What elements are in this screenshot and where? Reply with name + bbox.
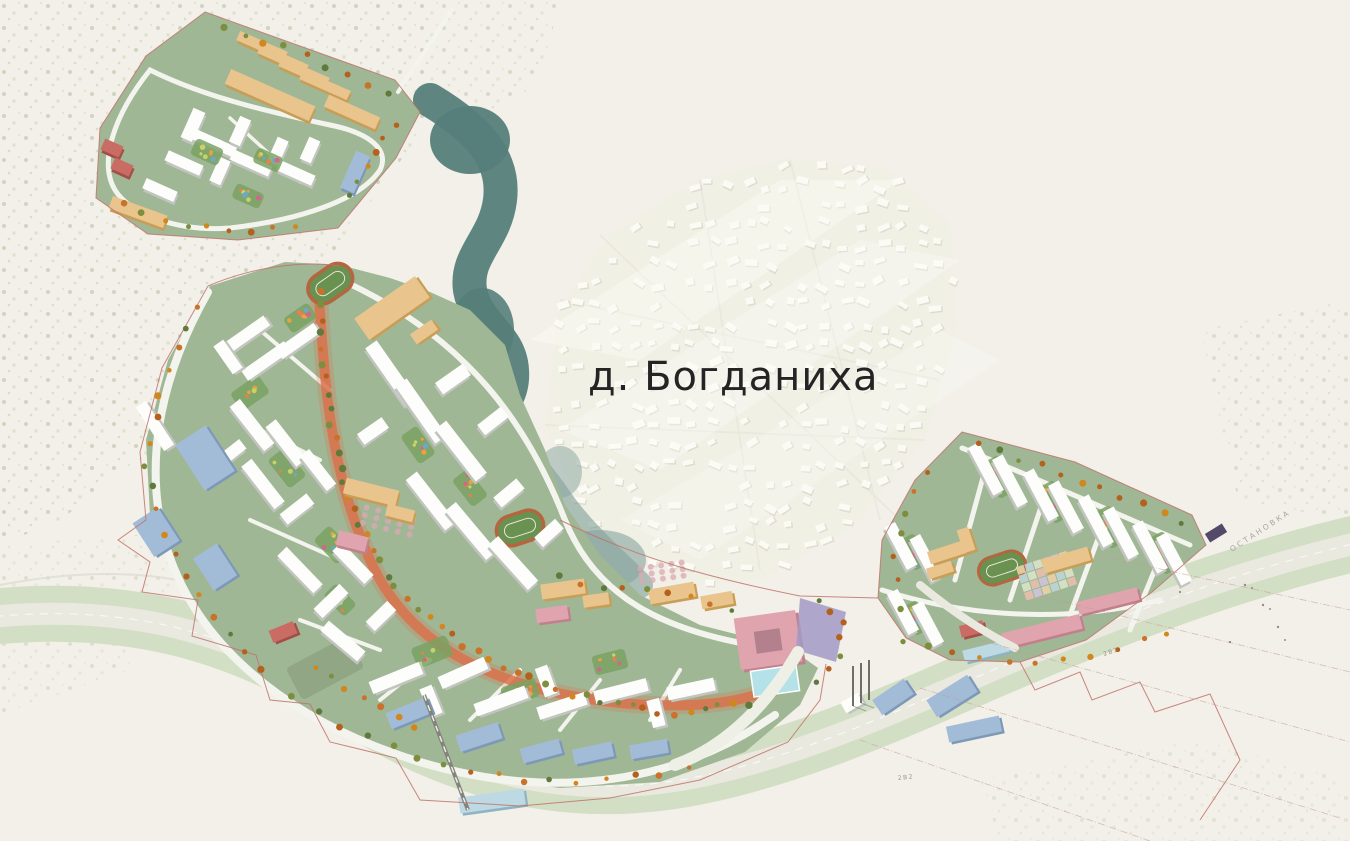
tree [167,368,172,373]
tree [644,586,650,592]
tree [121,200,128,207]
tree [411,724,418,731]
tree [1079,480,1086,487]
tree [891,554,896,559]
tree [689,594,694,599]
tree [415,607,421,613]
tree [366,164,371,169]
tree [324,373,329,378]
tree [161,532,168,539]
tree [317,328,324,335]
tree [574,781,579,786]
tree [468,770,473,775]
tree [329,406,335,412]
tree [204,223,209,228]
tree [259,40,266,47]
tree [386,91,392,97]
tree [176,345,182,351]
tree [336,450,343,457]
tree [817,598,822,603]
tree [320,318,326,324]
tree [317,301,324,308]
tree [631,702,636,707]
tree [902,511,908,517]
tree [257,666,264,673]
tree [244,34,249,39]
tree [386,574,392,580]
tree [148,441,153,446]
tree [1061,656,1066,661]
tree [458,643,465,650]
tree [1164,632,1169,637]
tree [1117,495,1123,501]
tree [326,392,332,398]
tree [542,681,549,688]
tree [355,180,360,185]
tree [688,709,694,715]
tree [380,136,385,141]
tree [347,193,352,198]
tree [210,614,217,621]
tree [186,224,191,229]
tree [154,392,161,399]
tree [376,556,383,563]
tree [521,779,527,785]
tree [138,209,145,216]
tree [671,712,678,719]
tree [365,531,371,537]
tree [394,123,399,128]
tree [1033,661,1038,666]
tree [497,771,502,776]
tree [976,441,982,447]
tree [656,772,663,779]
tree [556,572,563,579]
tree [227,228,232,233]
tree [329,674,334,679]
tree [1058,473,1063,478]
tree [352,505,359,512]
tree [322,64,329,71]
tree [196,592,201,597]
tree [141,463,147,469]
tree [898,530,904,536]
tree [664,590,671,597]
tree [339,465,346,472]
tree [715,702,720,707]
tree [570,694,576,700]
tree [316,708,322,714]
tree [365,82,372,89]
tree [1115,647,1120,652]
tree [341,686,347,692]
tree [977,655,982,660]
tree [730,700,737,707]
tree [897,606,903,612]
tree [242,649,247,654]
tree [584,691,591,698]
tree [334,435,340,441]
tree [616,700,622,706]
tree [345,72,351,78]
tree [707,601,713,607]
tree [654,711,660,717]
tree [841,619,847,625]
tree [730,608,735,613]
tree [515,669,522,676]
tree [619,585,625,591]
tree [996,446,1003,453]
tree [836,634,842,640]
tree [449,631,455,637]
tree [390,583,397,590]
tree [373,149,380,156]
tree [414,755,421,762]
tree [355,522,361,528]
tree [703,706,708,711]
tree [318,288,325,295]
tree [396,714,403,721]
tree [441,762,447,768]
tree [1179,521,1184,526]
tree [745,702,752,709]
tree [183,326,189,332]
tree [248,229,255,236]
tree [336,724,343,731]
tree [326,422,333,429]
tree [1087,654,1093,660]
tree [1162,509,1169,516]
tree [314,666,319,671]
tree [1097,484,1102,489]
tree [345,497,350,502]
masterplan-map: 2В2 2В2 ОСТАНОВКА д. Богданиха [0,0,1350,841]
tree [553,687,558,692]
tree [150,483,157,490]
tree [1140,499,1147,506]
tree [280,42,287,49]
tree [339,479,345,485]
tree [163,218,168,223]
tree [319,347,324,352]
tree [270,225,275,230]
tree [174,552,179,557]
tree [1016,458,1021,463]
tree [371,548,376,553]
tree [826,666,832,672]
tree [440,624,446,630]
tree [604,777,608,781]
tree [546,777,552,783]
tree [405,596,411,602]
tree [827,608,834,615]
tree [501,665,507,671]
tree [362,695,367,700]
tree [1007,659,1013,665]
tree [288,693,295,700]
tree [578,582,584,588]
tree [900,639,905,644]
tree [155,414,162,421]
tree [814,680,819,685]
tree [597,700,602,705]
tree [377,703,384,710]
tree [1040,461,1046,467]
tree [428,614,434,620]
tree [837,653,843,659]
tree [896,577,901,582]
tree [1142,636,1147,641]
tree [183,573,189,579]
tree [391,742,398,749]
tree [925,470,930,475]
tree [525,672,533,680]
tree [687,765,691,769]
tree [475,647,482,654]
tree [305,51,311,57]
tree [485,656,492,663]
tree [633,771,639,777]
tree [228,632,233,637]
tree [319,361,326,368]
tree [293,224,298,229]
tree [365,732,371,738]
tree [912,489,917,494]
tree [949,649,955,655]
tree [601,585,607,591]
tree [639,704,646,711]
tree [220,24,227,31]
tree [195,305,200,310]
village-name-label: д. Богданиха [588,354,879,400]
tree [154,507,159,512]
tree [925,643,932,650]
